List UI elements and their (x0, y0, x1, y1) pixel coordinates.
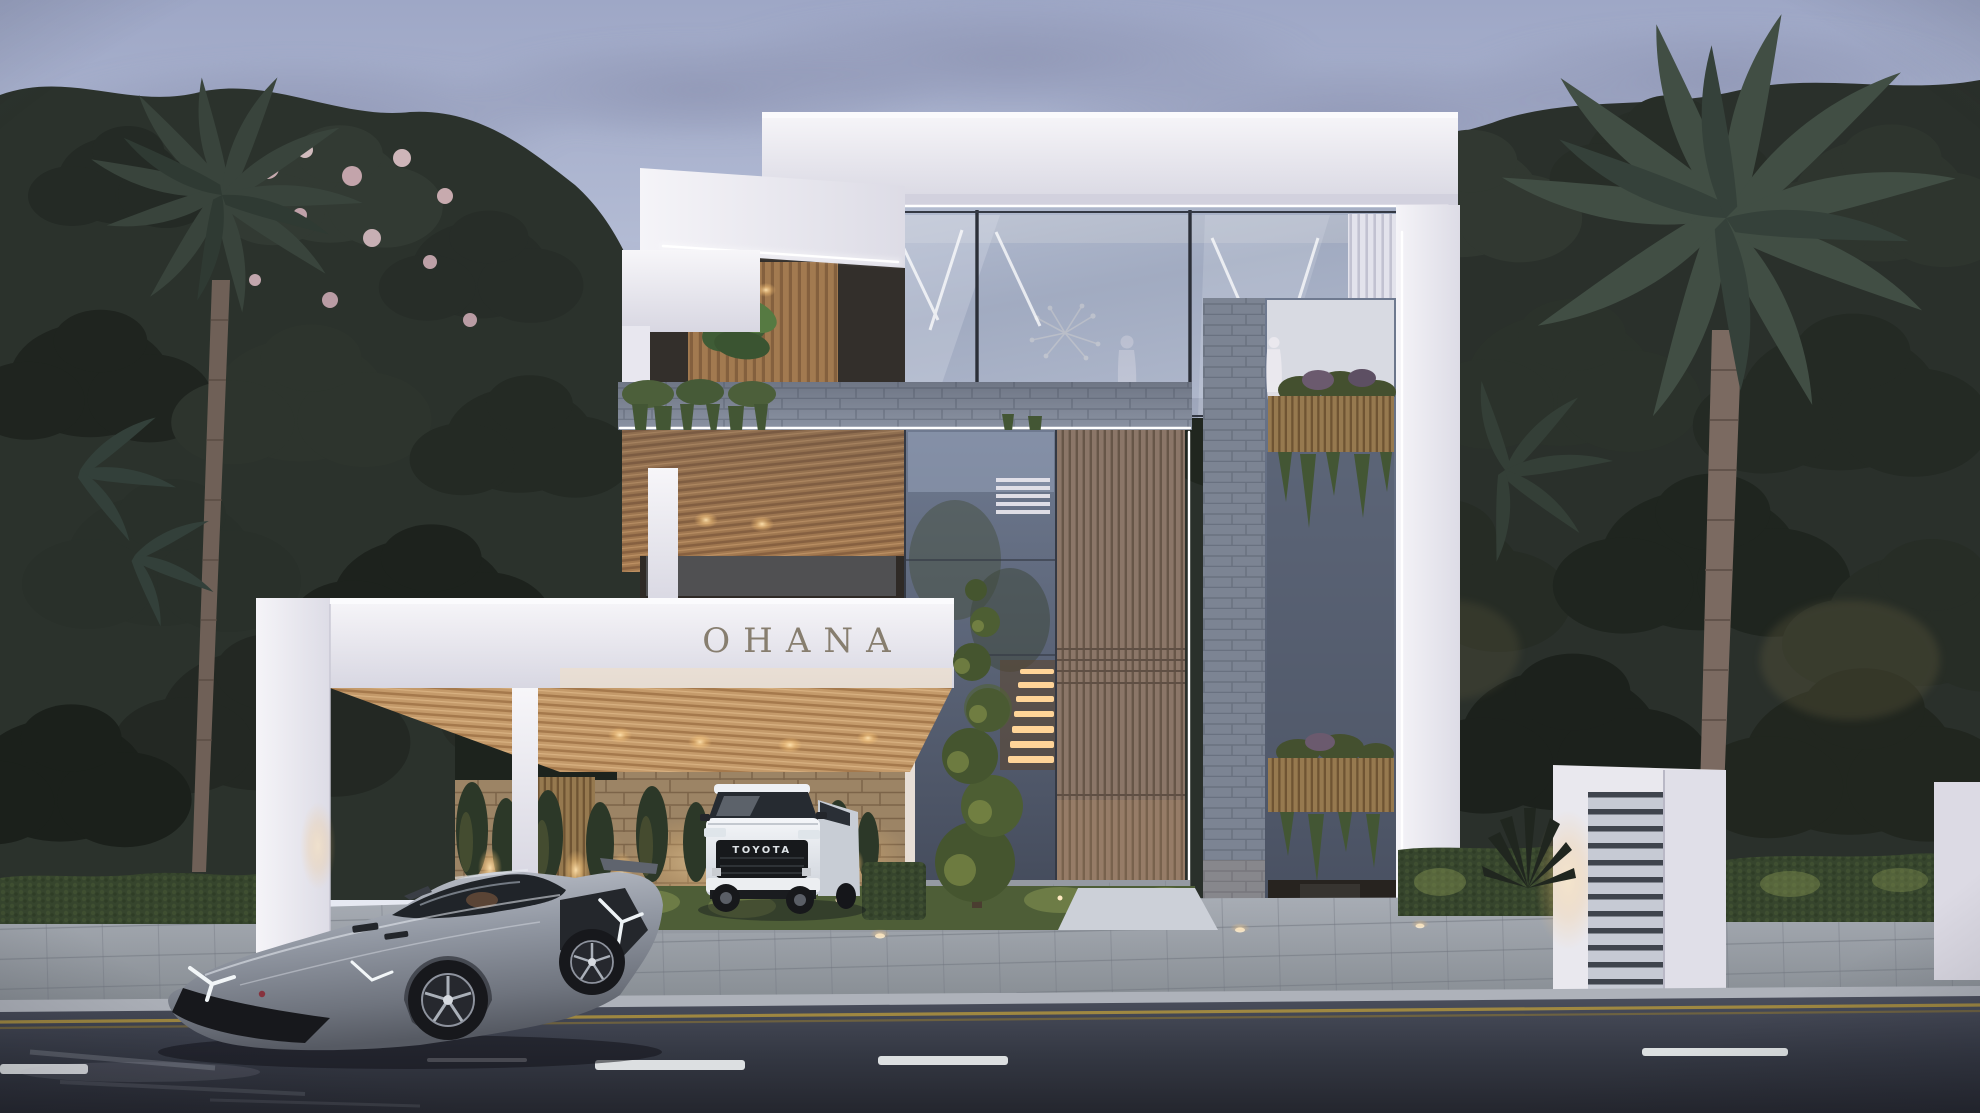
vignette-overlay (0, 0, 1980, 1113)
villa-exterior-render: OHANA (0, 0, 1980, 1113)
